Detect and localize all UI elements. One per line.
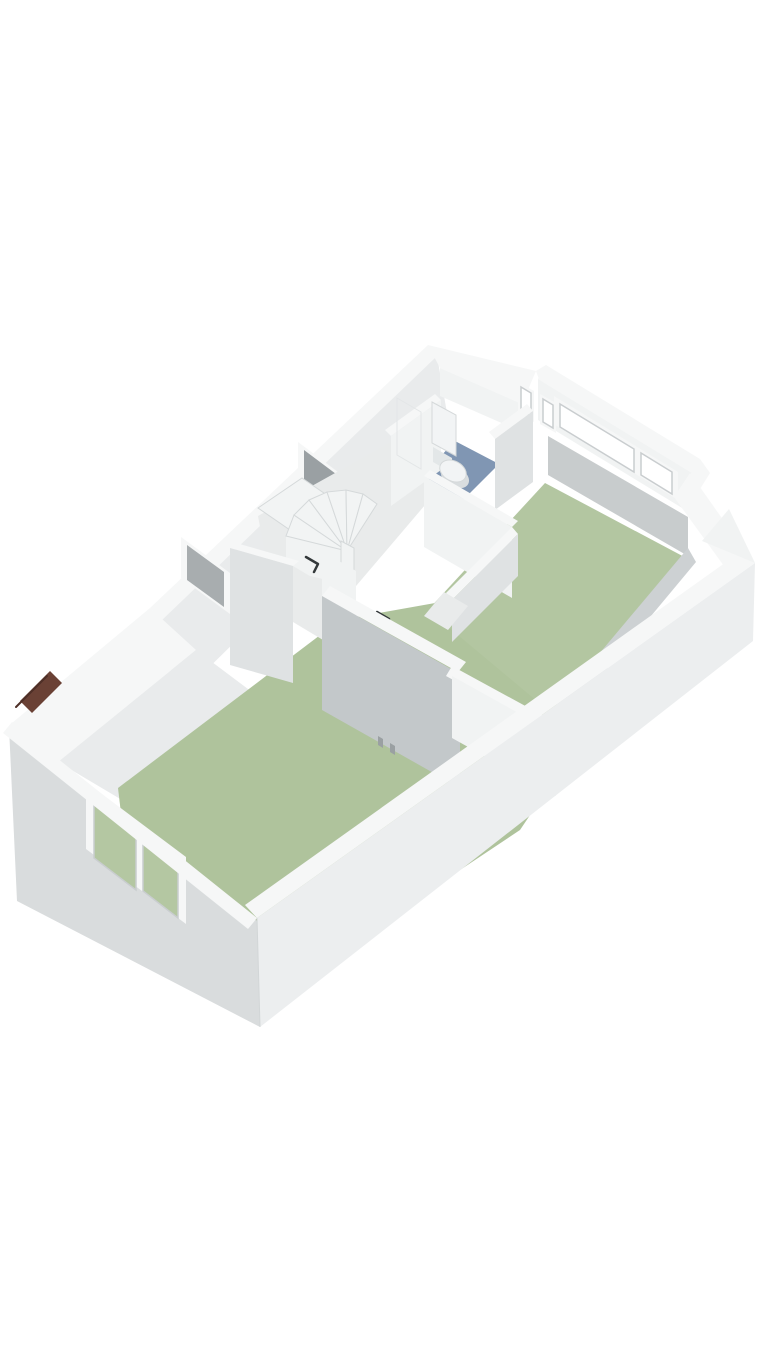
floorplan-3d-svg [0, 0, 768, 1365]
slit-window-2-glass [543, 399, 553, 428]
floorplan-3d-canvas [0, 0, 768, 1365]
landing-front-wall-face [230, 548, 293, 683]
